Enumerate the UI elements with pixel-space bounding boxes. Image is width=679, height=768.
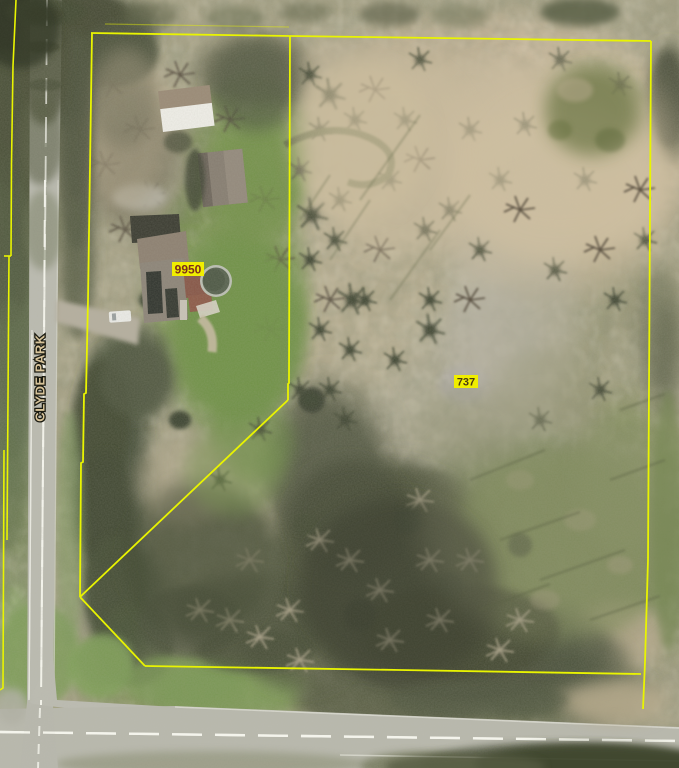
svg-text:737: 737 [457, 377, 475, 389]
svg-text:CLYDE PARK: CLYDE PARK [33, 334, 48, 421]
svg-text:9950: 9950 [175, 263, 202, 277]
